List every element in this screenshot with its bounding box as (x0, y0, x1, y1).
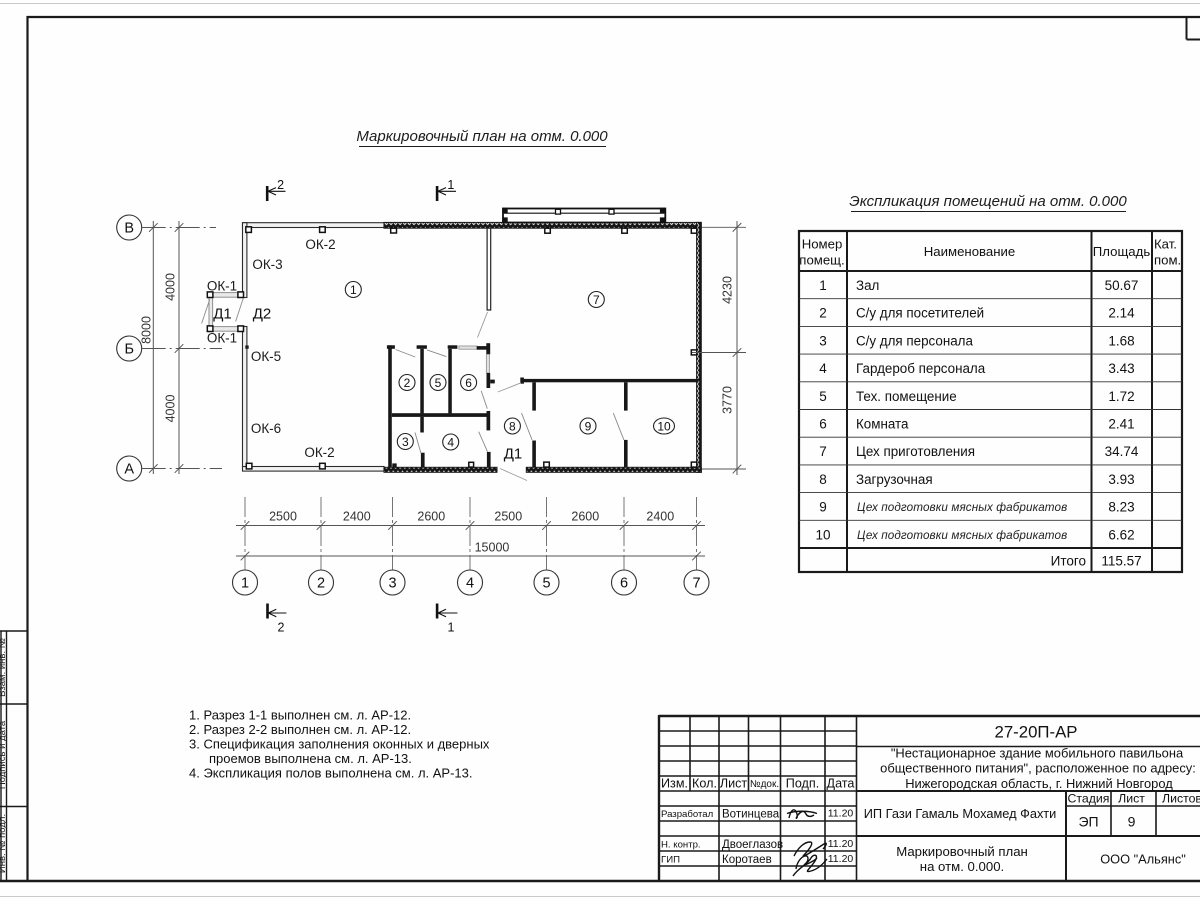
svg-text:Инв. № подл.: Инв. № подл. (0, 814, 8, 873)
svg-text:ГИП: ГИП (661, 855, 680, 866)
svg-text:Изм.: Изм. (661, 777, 688, 791)
svg-text:1: 1 (241, 576, 249, 592)
svg-text:Кол.: Кол. (692, 777, 717, 791)
svg-text:15000: 15000 (475, 541, 510, 555)
svg-text:Экспликация помещений на отм.: Экспликация помещений на отм. 0.000 (849, 193, 1127, 210)
svg-text:Взам. инв. №: Взам. инв. № (0, 638, 8, 697)
svg-text:ОК-2: ОК-2 (304, 445, 334, 460)
svg-text:4230: 4230 (721, 276, 735, 304)
svg-text:пом.: пом. (1154, 253, 1181, 268)
svg-text:2: 2 (277, 178, 284, 192)
svg-text:2500: 2500 (269, 510, 297, 524)
svg-text:6: 6 (465, 376, 472, 390)
svg-text:9: 9 (819, 500, 827, 515)
svg-text:Коротаев: Коротаев (722, 854, 772, 866)
svg-text:3: 3 (402, 435, 409, 449)
svg-text:9: 9 (1128, 814, 1136, 830)
svg-text:8.23: 8.23 (1108, 500, 1134, 515)
svg-text:34.74: 34.74 (1105, 444, 1139, 459)
svg-text:2.14: 2.14 (1108, 306, 1135, 321)
svg-text:Подп.: Подп. (786, 777, 819, 791)
svg-text:Гардероб персонала: Гардероб персонала (856, 361, 986, 376)
svg-text:Д1: Д1 (213, 306, 232, 323)
svg-text:11.20: 11.20 (828, 808, 854, 820)
svg-text:9: 9 (585, 419, 592, 433)
svg-text:2600: 2600 (571, 510, 599, 524)
svg-text:Итого: Итого (1051, 554, 1086, 569)
svg-text:на отм. 0.000.: на отм. 0.000. (920, 859, 1004, 874)
svg-text:5: 5 (435, 376, 442, 390)
svg-text:3: 3 (388, 576, 396, 592)
svg-text:Зал: Зал (856, 278, 879, 293)
svg-text:3. Спецификация заполнения око: 3. Спецификация заполнения оконных и две… (189, 737, 490, 752)
svg-text:7: 7 (819, 444, 827, 459)
svg-text:Лист: Лист (720, 777, 748, 791)
svg-text:ОК-1: ОК-1 (207, 330, 237, 345)
svg-text:4000: 4000 (163, 395, 177, 423)
svg-text:2: 2 (278, 621, 285, 635)
svg-text:3: 3 (819, 333, 827, 348)
svg-text:6.62: 6.62 (1108, 527, 1134, 542)
svg-text:ОК-2: ОК-2 (305, 237, 335, 252)
svg-text:2600: 2600 (417, 510, 445, 524)
svg-text:№док.: №док. (750, 779, 779, 790)
svg-text:1. Разрез 1-1 выполнен см. л.: 1. Разрез 1-1 выполнен см. л. АР-12. (189, 708, 411, 723)
svg-text:ОК-3: ОК-3 (252, 257, 282, 272)
svg-text:2: 2 (819, 306, 827, 321)
svg-text:Д2: Д2 (253, 306, 272, 323)
svg-text:3770: 3770 (721, 386, 735, 414)
svg-text:ОК-6: ОК-6 (251, 421, 281, 436)
svg-text:1: 1 (350, 283, 357, 297)
svg-text:ИП Гази Гамаль Мохамед Фахти: ИП Гази Гамаль Мохамед Фахти (864, 806, 1057, 821)
svg-text:4. Экспликация полов выполнена: 4. Экспликация полов выполнена см. л. АР… (189, 766, 473, 781)
svg-text:Кат.: Кат. (1154, 237, 1177, 252)
svg-text:1.72: 1.72 (1108, 389, 1134, 404)
svg-text:3.43: 3.43 (1108, 361, 1134, 376)
svg-text:7: 7 (593, 293, 600, 307)
svg-text:5: 5 (542, 576, 550, 592)
svg-text:ООО "Альянс": ООО "Альянс" (1100, 852, 1186, 867)
svg-text:1: 1 (448, 621, 455, 635)
svg-text:6: 6 (819, 417, 827, 432)
svg-text:общественного питания", распол: общественного питания", расположенное по… (880, 761, 1196, 776)
svg-text:Наименование: Наименование (924, 244, 1015, 259)
svg-text:11.20: 11.20 (828, 838, 854, 850)
svg-text:27-20П-АР: 27-20П-АР (995, 723, 1078, 742)
svg-text:2: 2 (317, 576, 325, 592)
svg-text:С/у для персонала: С/у для персонала (856, 333, 973, 348)
svg-text:Лист: Лист (1118, 792, 1145, 806)
svg-text:Номер: Номер (802, 237, 843, 252)
svg-text:Вотинцева: Вотинцева (722, 809, 780, 821)
svg-text:помещ.: помещ. (799, 253, 844, 268)
svg-text:Цех подготовки мясных фабрикат: Цех подготовки мясных фабрикатов (857, 529, 1067, 542)
svg-text:2500: 2500 (494, 510, 522, 524)
svg-text:5: 5 (819, 389, 827, 404)
svg-text:8: 8 (509, 419, 516, 433)
svg-text:4000: 4000 (163, 273, 177, 301)
svg-text:В: В (124, 221, 134, 237)
svg-text:2400: 2400 (343, 510, 371, 524)
svg-text:Цех приготовления: Цех приготовления (856, 444, 975, 459)
svg-text:11.20: 11.20 (828, 853, 854, 865)
svg-text:1: 1 (447, 178, 454, 192)
svg-text:Цех подготовки мясных фабрикат: Цех подготовки мясных фабрикатов (857, 501, 1067, 514)
svg-text:115.57: 115.57 (1101, 554, 1141, 569)
svg-text:8: 8 (819, 472, 827, 487)
svg-text:7: 7 (692, 576, 700, 592)
svg-text:4: 4 (466, 576, 474, 592)
svg-text:1.68: 1.68 (1108, 333, 1134, 348)
svg-text:Листов: Листов (1162, 792, 1200, 806)
svg-text:Площадь: Площадь (1093, 244, 1151, 259)
svg-text:2. Разрез 2-2 выполнен см. л.: 2. Разрез 2-2 выполнен см. л. АР-12. (189, 722, 411, 737)
svg-text:Маркировочный план: Маркировочный план (896, 844, 1028, 859)
svg-text:Тех. помещение: Тех. помещение (856, 389, 957, 404)
svg-text:проемов выполнена см. л. АР-13: проемов выполнена см. л. АР-13. (209, 751, 412, 766)
svg-text:ОК-1: ОК-1 (207, 278, 237, 293)
svg-text:2: 2 (404, 376, 411, 390)
svg-text:10: 10 (657, 419, 671, 433)
svg-text:10: 10 (815, 527, 830, 542)
svg-text:"Нестационарное здание мобильн: "Нестационарное здание мобильного павиль… (891, 746, 1184, 761)
svg-text:Подпись и дата: Подпись и дата (0, 720, 8, 789)
svg-text:Дата: Дата (827, 777, 855, 791)
svg-text:А: А (124, 462, 134, 478)
svg-text:8000: 8000 (140, 316, 154, 344)
svg-text:Загрузочная: Загрузочная (856, 472, 933, 487)
svg-text:3.93: 3.93 (1108, 472, 1134, 487)
svg-text:Нижегородская область, г. Нижн: Нижегородская область, г. Нижний Новгоро… (905, 776, 1173, 791)
svg-text:6: 6 (620, 576, 628, 592)
svg-text:Комната: Комната (856, 417, 909, 432)
svg-text:4: 4 (819, 361, 827, 376)
svg-text:50.67: 50.67 (1105, 278, 1139, 293)
svg-text:4: 4 (447, 435, 454, 449)
svg-text:Н. контр.: Н. контр. (661, 840, 701, 851)
svg-text:Б: Б (124, 342, 134, 358)
svg-text:Двоеглазов: Двоеглазов (722, 839, 783, 851)
svg-text:Разработал: Разработал (661, 809, 713, 820)
svg-text:ЭП: ЭП (1078, 814, 1098, 830)
svg-text:1: 1 (819, 278, 827, 293)
svg-text:С/у для посетителей: С/у для посетителей (856, 306, 984, 321)
svg-text:ОК-5: ОК-5 (251, 349, 281, 364)
svg-text:Стадия: Стадия (1068, 792, 1110, 806)
svg-text:2400: 2400 (646, 510, 674, 524)
svg-text:Д1: Д1 (504, 446, 523, 463)
svg-text:2.41: 2.41 (1108, 417, 1134, 432)
svg-text:Маркировочный план на отм. 0.0: Маркировочный план на отм. 0.000 (356, 128, 608, 145)
